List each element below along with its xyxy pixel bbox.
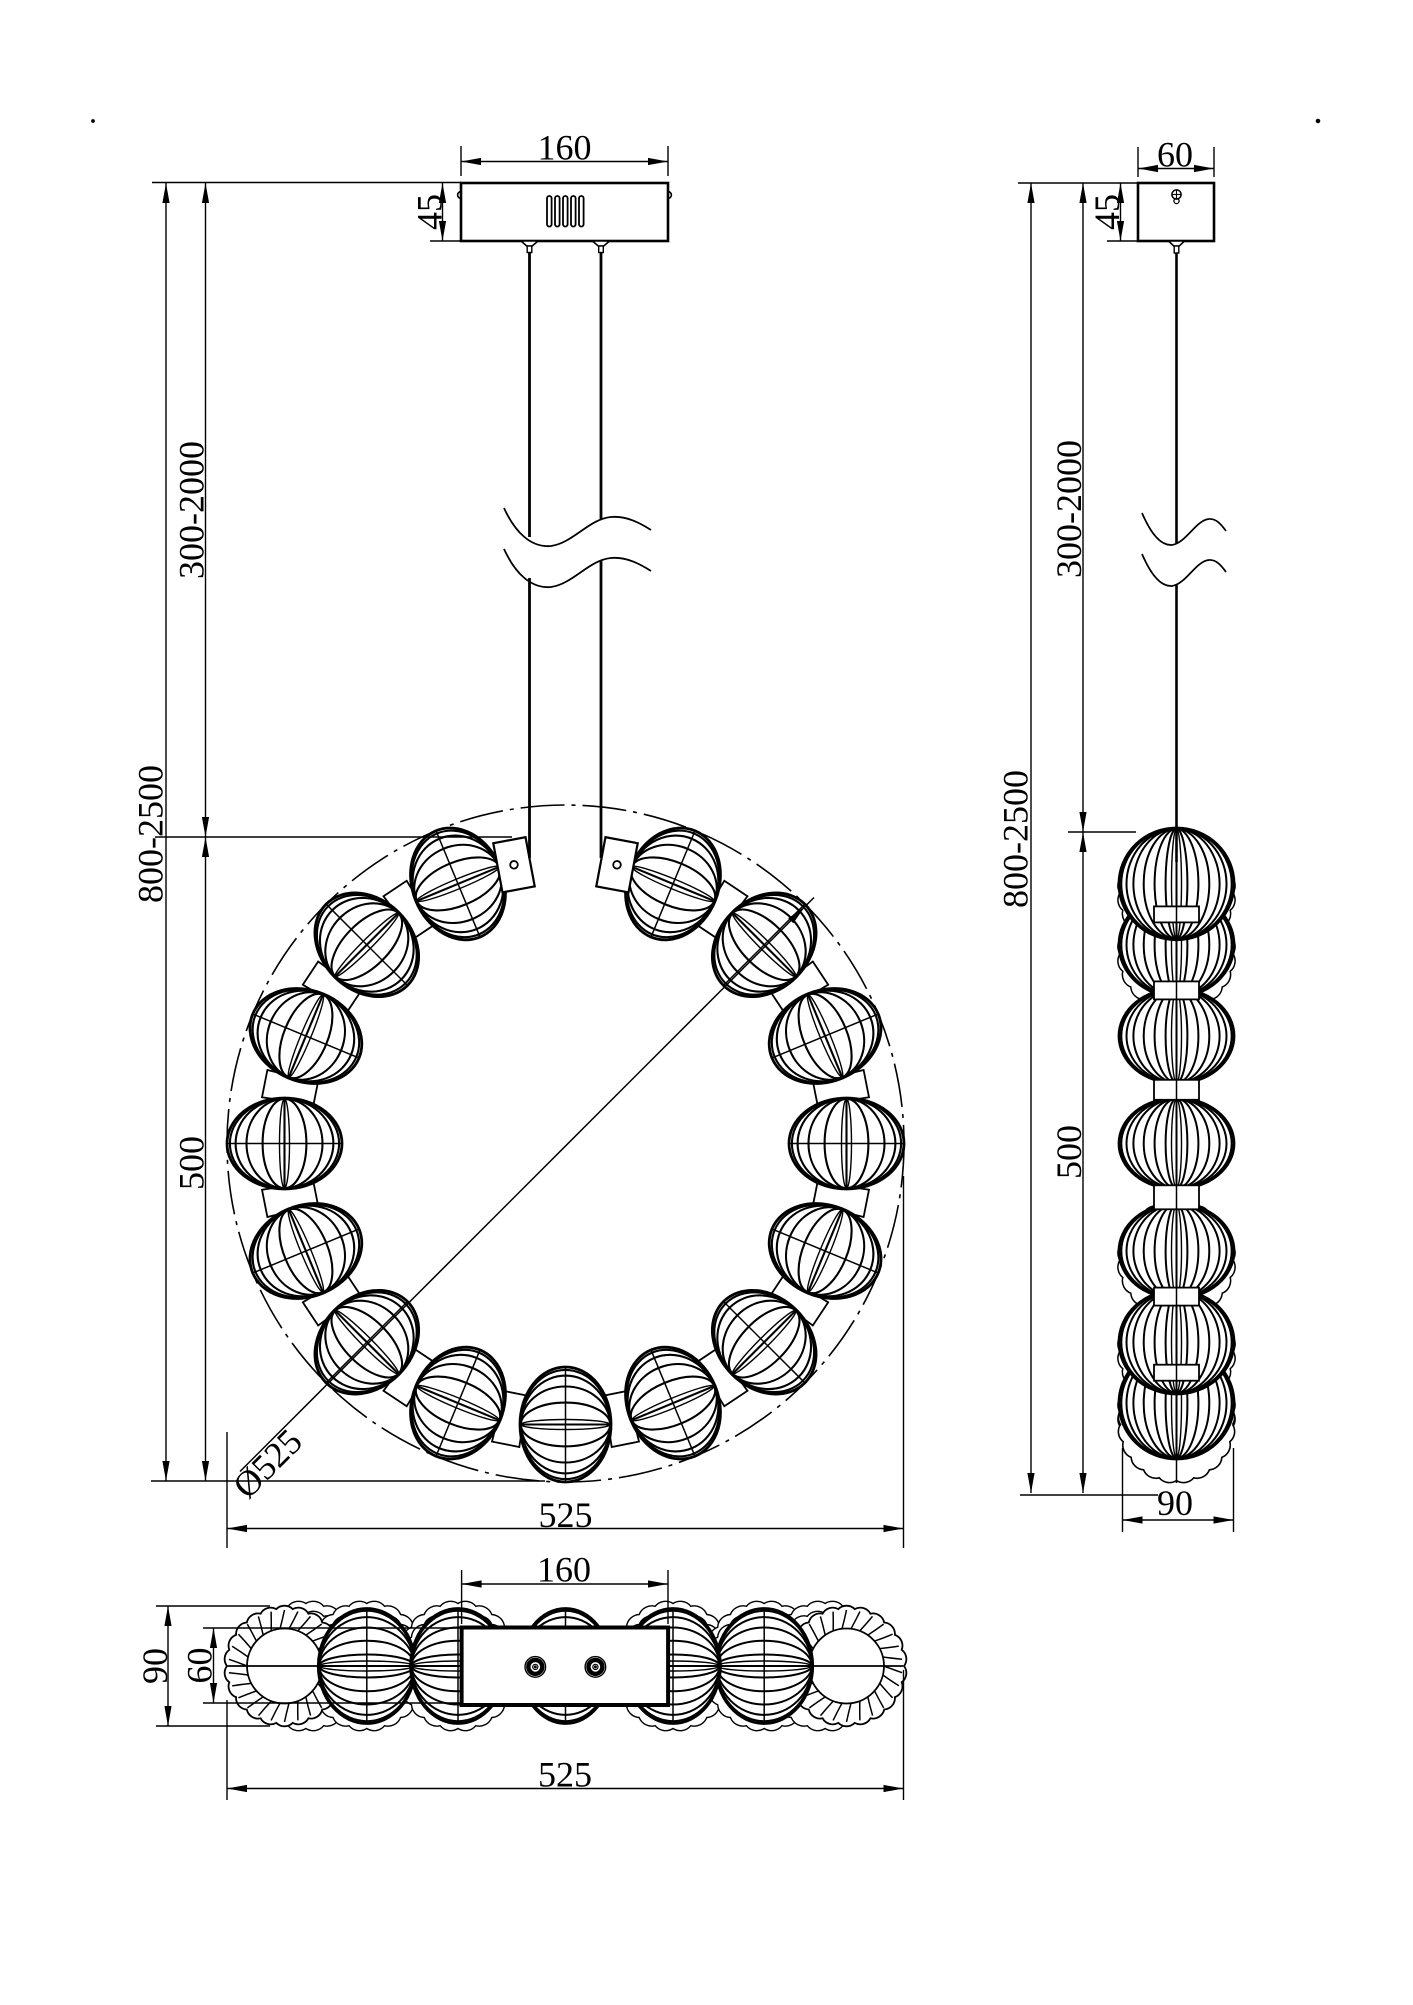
svg-text:800-2500: 800-2500	[131, 765, 171, 903]
svg-text:500: 500	[172, 1136, 212, 1190]
svg-text:525: 525	[538, 1755, 592, 1795]
svg-text:90: 90	[135, 1648, 175, 1684]
svg-text:160: 160	[537, 1550, 591, 1590]
svg-text:800-2500: 800-2500	[996, 770, 1036, 908]
svg-text:45: 45	[410, 194, 450, 230]
svg-text:525: 525	[539, 1495, 593, 1535]
svg-text:60: 60	[180, 1648, 220, 1684]
svg-text:45: 45	[1087, 194, 1127, 230]
svg-text:160: 160	[538, 128, 592, 168]
svg-text:300-2000: 300-2000	[172, 441, 212, 579]
svg-text:60: 60	[1157, 135, 1193, 175]
svg-text:90: 90	[1157, 1483, 1193, 1523]
svg-text:500: 500	[1049, 1125, 1089, 1179]
svg-text:300-2000: 300-2000	[1049, 440, 1089, 578]
